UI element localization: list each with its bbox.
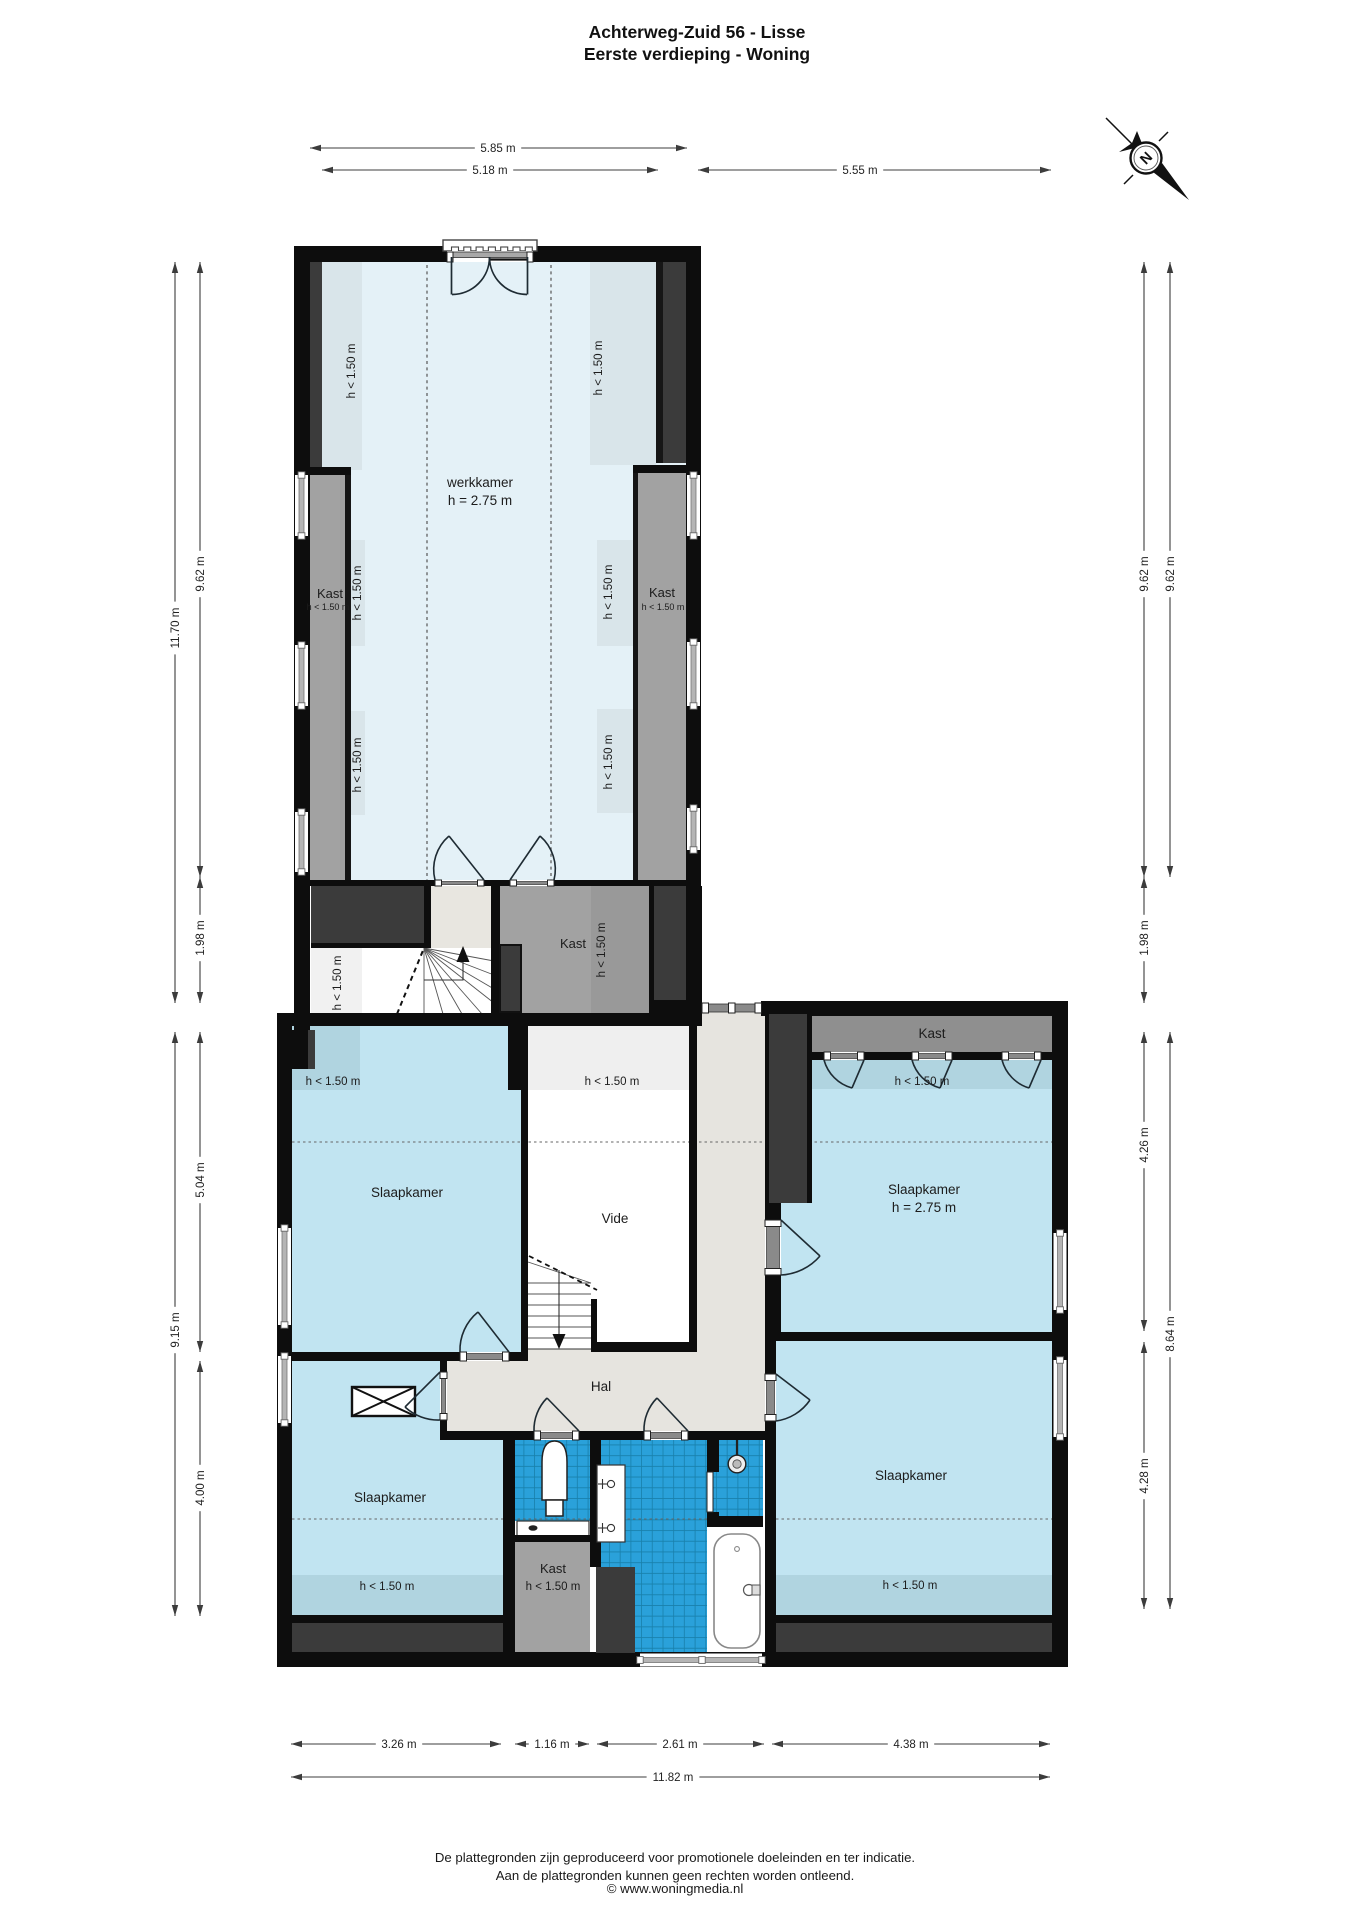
svg-text:h < 1.50 m: h < 1.50 m: [596, 923, 608, 978]
svg-text:Hal: Hal: [591, 1379, 611, 1394]
svg-text:Vide: Vide: [602, 1211, 629, 1226]
svg-text:h < 1.50 m: h < 1.50 m: [895, 1076, 950, 1088]
svg-text:Kast: Kast: [317, 586, 343, 601]
svg-text:Slaapkamer: Slaapkamer: [354, 1490, 427, 1505]
svg-text:h < 1.50 m: h < 1.50 m: [306, 1076, 361, 1088]
svg-text:4.26 m: 4.26 m: [1139, 1127, 1151, 1162]
svg-text:h < 1.50 m: h < 1.50 m: [526, 1581, 581, 1593]
svg-text:4.38 m: 4.38 m: [893, 1739, 928, 1751]
svg-text:4.28 m: 4.28 m: [1139, 1458, 1151, 1493]
svg-text:h = 2.75 m: h = 2.75 m: [892, 1200, 956, 1215]
svg-text:© www.woningmedia.nl: © www.woningmedia.nl: [607, 1881, 744, 1896]
svg-text:2.61 m: 2.61 m: [662, 1739, 697, 1751]
svg-text:Slaapkamer: Slaapkamer: [371, 1185, 444, 1200]
svg-text:1.98 m: 1.98 m: [195, 920, 207, 955]
svg-text:h < 1.50 m: h < 1.50 m: [642, 602, 685, 612]
svg-text:Eerste verdieping - Woning: Eerste verdieping - Woning: [584, 44, 810, 64]
svg-text:h < 1.50 m: h < 1.50 m: [346, 344, 358, 399]
svg-text:h < 1.50 m: h < 1.50 m: [585, 1076, 640, 1088]
svg-text:h < 1.50 m: h < 1.50 m: [307, 602, 350, 612]
svg-text:9.15 m: 9.15 m: [170, 1312, 182, 1347]
svg-text:4.00 m: 4.00 m: [195, 1470, 207, 1505]
svg-text:h < 1.50 m: h < 1.50 m: [603, 565, 615, 620]
svg-text:De plattegronden zijn geproduc: De plattegronden zijn geproduceerd voor …: [435, 1850, 915, 1865]
svg-text:h < 1.50 m: h < 1.50 m: [883, 1580, 938, 1592]
svg-text:3.26 m: 3.26 m: [381, 1739, 416, 1751]
svg-text:5.85 m: 5.85 m: [480, 143, 515, 155]
svg-text:8.64 m: 8.64 m: [1165, 1316, 1177, 1351]
svg-text:9.62 m: 9.62 m: [1165, 556, 1177, 591]
svg-text:h < 1.50 m: h < 1.50 m: [352, 566, 364, 621]
svg-text:werkkamer: werkkamer: [446, 475, 514, 490]
svg-text:Achterweg-Zuid 56 - Lisse: Achterweg-Zuid 56 - Lisse: [589, 22, 806, 42]
svg-text:11.70 m: 11.70 m: [170, 608, 182, 649]
svg-text:Kast: Kast: [918, 1026, 945, 1041]
svg-text:5.04 m: 5.04 m: [195, 1162, 207, 1197]
svg-text:h < 1.50 m: h < 1.50 m: [360, 1581, 415, 1593]
svg-text:1.16 m: 1.16 m: [534, 1739, 569, 1751]
svg-text:11.82 m: 11.82 m: [653, 1772, 694, 1784]
svg-text:Kast: Kast: [649, 585, 675, 600]
svg-text:h < 1.50 m: h < 1.50 m: [352, 738, 364, 793]
svg-text:1.98 m: 1.98 m: [1139, 920, 1151, 955]
svg-text:Slaapkamer: Slaapkamer: [875, 1468, 948, 1483]
svg-text:5.18 m: 5.18 m: [472, 165, 507, 177]
svg-text:5.55 m: 5.55 m: [842, 165, 877, 177]
svg-text:Kast: Kast: [560, 936, 586, 951]
svg-text:h < 1.50 m: h < 1.50 m: [603, 735, 615, 790]
svg-text:h < 1.50 m: h < 1.50 m: [593, 341, 605, 396]
svg-text:9.62 m: 9.62 m: [195, 556, 207, 591]
svg-text:Slaapkamer: Slaapkamer: [888, 1182, 961, 1197]
svg-text:9.62 m: 9.62 m: [1139, 556, 1151, 591]
svg-text:Kast: Kast: [540, 1561, 566, 1576]
svg-text:h < 1.50 m: h < 1.50 m: [332, 956, 344, 1011]
svg-text:h = 2.75 m: h = 2.75 m: [448, 493, 512, 508]
